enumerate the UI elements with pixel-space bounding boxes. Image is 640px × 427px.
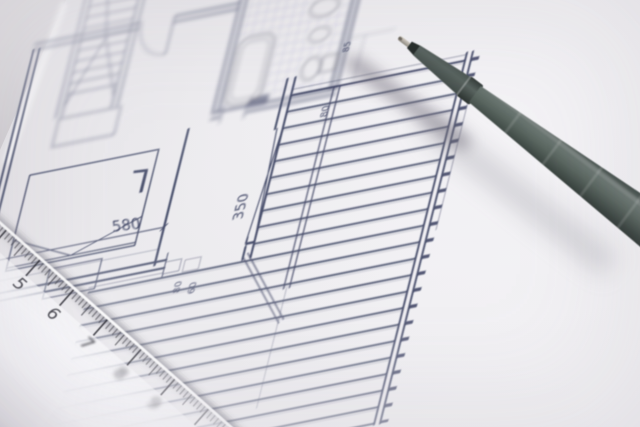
dimension-580-label: 580 — [111, 214, 141, 235]
interior-wall — [155, 129, 189, 265]
door-leaf — [166, 16, 176, 54]
dimension-350-label: 350 — [230, 192, 252, 222]
deck-dimension-85-label: 85 — [342, 40, 354, 53]
room-number-label: 7 — [130, 163, 154, 201]
photo-scene: 7 580 350 — [0, 0, 640, 427]
